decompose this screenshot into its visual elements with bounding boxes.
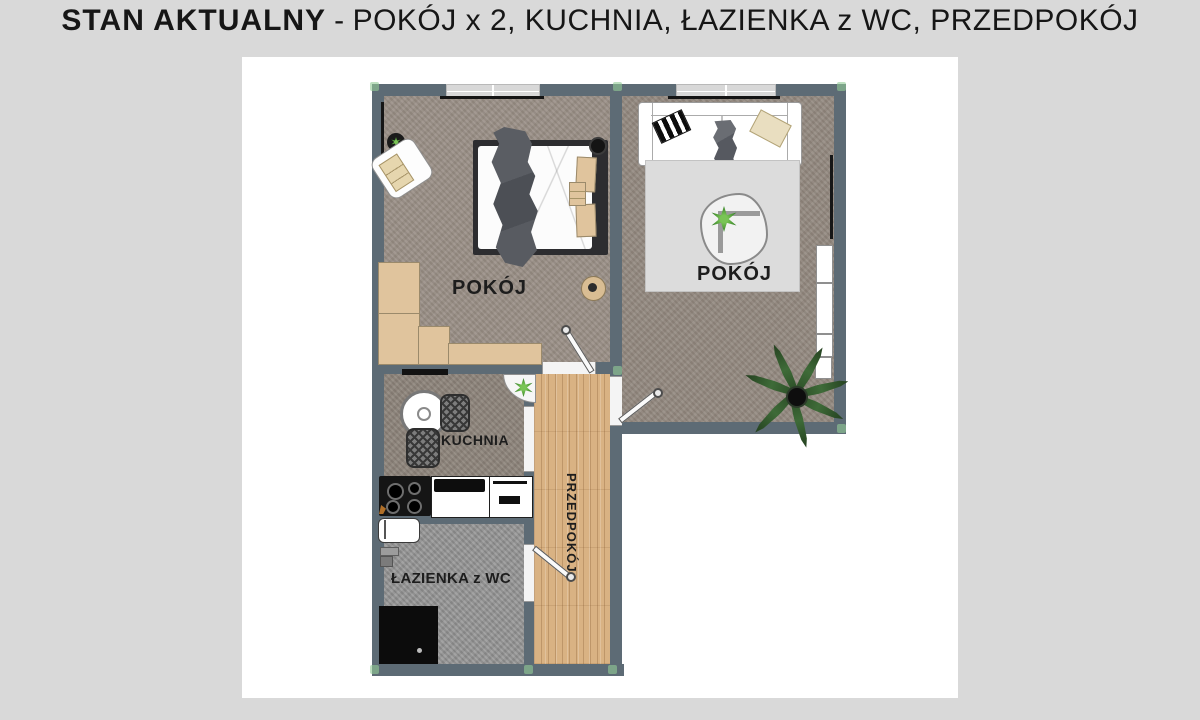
burner	[408, 482, 421, 495]
wardrobe-unit	[378, 262, 420, 315]
pouf-center	[588, 283, 597, 292]
kitchen-doorway-opening	[524, 406, 534, 472]
kitchen-label: KUCHNIA	[441, 432, 509, 448]
sideboard	[448, 343, 542, 365]
bed	[473, 140, 608, 255]
corner-plant-icon	[514, 378, 533, 397]
corner-marker	[524, 665, 533, 674]
shower-drain	[417, 648, 422, 653]
living-label: POKÓJ	[697, 263, 772, 286]
table-plant-icon	[711, 206, 737, 232]
cabinet-handle	[499, 496, 520, 504]
sink-counter	[431, 476, 491, 518]
floor-plan-page: STAN AKTUALNY-POKÓJ x 2, KUCHNIA, ŁAZIEN…	[0, 0, 1200, 720]
bedroom-door-handle	[561, 325, 571, 335]
bed-pillow	[575, 204, 596, 238]
kitchen-cabinet	[489, 476, 533, 518]
kitchen-chair	[406, 428, 440, 468]
sink-basin	[434, 479, 485, 492]
corner-marker	[837, 82, 846, 91]
corner-marker	[613, 366, 622, 375]
living-curtain-rod	[668, 96, 780, 99]
washing-machine-door	[384, 520, 386, 539]
washing-machine	[378, 518, 420, 543]
burner	[387, 483, 404, 500]
bedroom-label: POKÓJ	[452, 277, 527, 300]
wall-bottom	[372, 664, 624, 676]
shelf-unit	[816, 245, 833, 283]
radiator	[830, 155, 833, 239]
pouf	[581, 276, 606, 301]
floor-plan: POKÓJ POKÓJ	[0, 0, 1200, 720]
shower	[379, 606, 438, 664]
bed-pillow-small	[569, 182, 586, 206]
sofa-armrest	[639, 103, 653, 162]
wall-shelf	[402, 369, 448, 375]
hallway-label: PRZEDPOKÓJ	[564, 473, 579, 573]
sofa-armrest	[787, 103, 801, 162]
cabinet-handle	[493, 481, 527, 484]
burner	[407, 499, 422, 514]
dining-table-center	[417, 407, 431, 421]
corner-marker	[370, 82, 379, 91]
burner	[386, 500, 400, 514]
corner-marker	[608, 665, 617, 674]
bathroom-door-handle	[566, 572, 576, 582]
bathroom-door-opening	[524, 544, 534, 602]
shelf-unit	[816, 283, 833, 334]
palm-plant	[752, 360, 842, 430]
bathroom-sink	[380, 547, 399, 556]
wardrobe-unit	[378, 313, 420, 365]
cooktop	[379, 476, 431, 516]
plant-pot	[786, 386, 808, 408]
bathroom-sink	[380, 556, 393, 567]
bedside-lamp	[589, 137, 607, 155]
coffee-table	[700, 193, 768, 265]
kitchen-chair	[440, 394, 470, 432]
corner-marker	[370, 665, 379, 674]
armchair-cushion	[378, 153, 414, 192]
living-door-handle	[653, 388, 663, 398]
bedroom-curtain-rod	[440, 96, 544, 99]
bathroom-label: ŁAZIENKA z WC	[391, 570, 511, 587]
wardrobe-unit	[418, 326, 450, 365]
corner-marker	[613, 82, 622, 91]
